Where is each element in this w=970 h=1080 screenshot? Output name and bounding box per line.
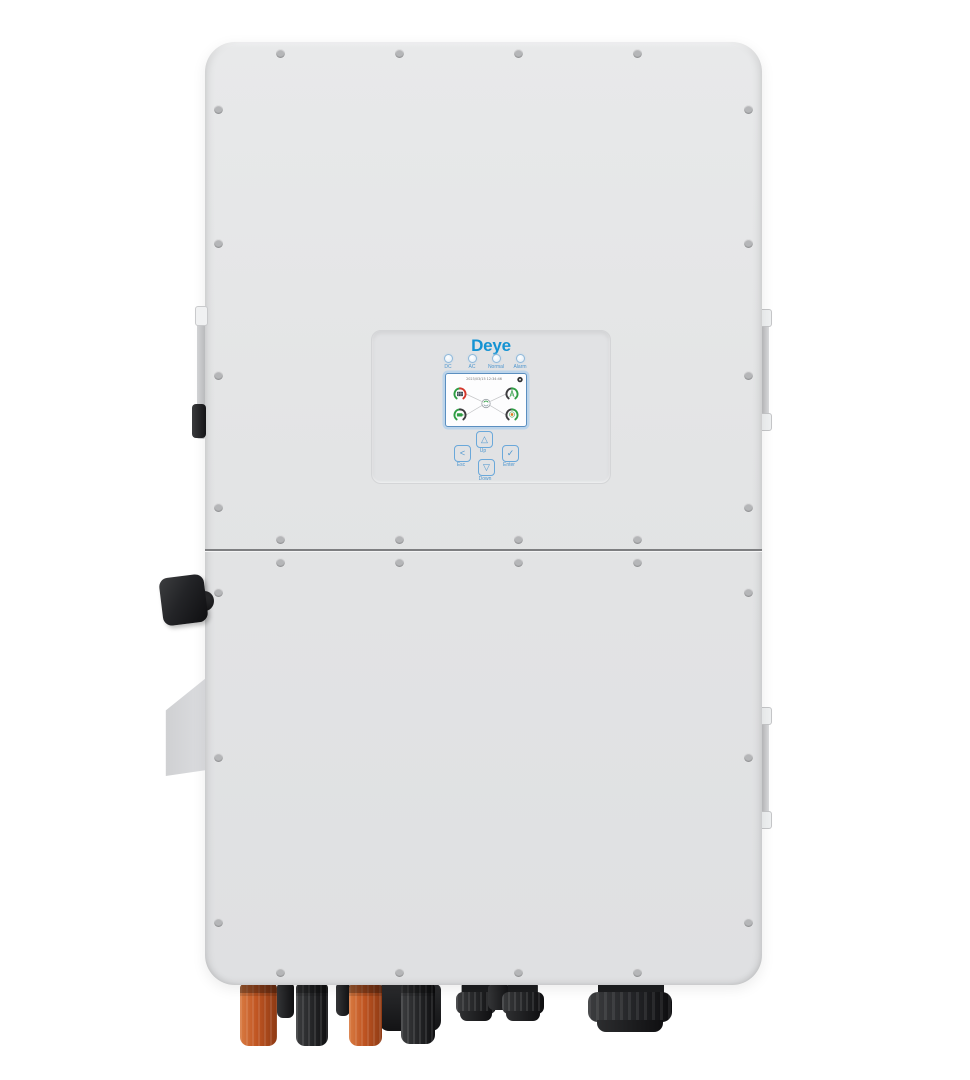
up-button[interactable]: △ <box>476 431 493 448</box>
svg-text:2023/03/15 12:34:46: 2023/03/15 12:34:46 <box>466 377 502 381</box>
screw <box>744 588 753 597</box>
lcd-status-graphic: 2023/03/15 12:34:46 <box>446 374 526 426</box>
enter-button[interactable]: ✓ <box>502 445 519 462</box>
esc-button-label: Esc <box>446 462 476 468</box>
normal-led-icon <box>492 354 501 363</box>
left-rail-cap <box>195 306 208 326</box>
grid-gauge <box>506 388 517 398</box>
left-rail-grip <box>192 404 206 438</box>
led-dc: DC <box>435 354 461 370</box>
load-gauge <box>506 409 517 419</box>
screw <box>395 558 404 567</box>
settings-gear-icon <box>517 377 522 382</box>
led-normal: Normal <box>483 354 509 370</box>
alarm-led-icon <box>516 354 525 363</box>
pv-connector-orange-2 <box>349 984 382 1046</box>
dc-switch-knob[interactable] <box>158 573 209 626</box>
screw <box>214 918 223 927</box>
esc-button[interactable]: < <box>454 445 471 462</box>
screw <box>276 558 285 567</box>
screw <box>514 49 523 58</box>
pv-connector-black-1 <box>296 984 328 1046</box>
pv-connector-orange-1 <box>240 984 277 1046</box>
enclosure-seam <box>205 549 762 551</box>
wall-mount-bracket <box>165 678 206 776</box>
screw <box>395 49 404 58</box>
screw <box>633 968 642 977</box>
screw <box>514 558 523 567</box>
screw <box>276 968 285 977</box>
led-alarm: Alarm <box>507 354 533 370</box>
inverter-enclosure <box>205 42 762 985</box>
product-photo-deye-hybrid-inverter: Deye DC AC Normal Alarm 2023/03/15 12:3 <box>0 0 970 1080</box>
screw <box>633 535 642 544</box>
lcd-screen: 2023/03/15 12:34:46 <box>445 373 527 427</box>
screw <box>214 371 223 380</box>
down-button[interactable]: ▽ <box>478 459 495 476</box>
right-handle-rail-upper <box>761 314 769 426</box>
screw <box>214 105 223 114</box>
screw <box>395 968 404 977</box>
pv-connector-stub-1 <box>277 984 294 1018</box>
screw <box>744 918 753 927</box>
cable-gland-large <box>588 982 672 1034</box>
screw <box>214 588 223 597</box>
screw <box>514 535 523 544</box>
led-ac: AC <box>459 354 485 370</box>
pv-gauge <box>454 388 465 398</box>
screw <box>744 371 753 380</box>
battery-gauge <box>454 409 465 419</box>
screw <box>744 239 753 248</box>
right-handle-rail-lower <box>761 712 769 824</box>
screw <box>744 753 753 762</box>
cable-gland-small-2 <box>502 984 544 1024</box>
screw <box>214 239 223 248</box>
up-button-label: Up <box>468 448 498 454</box>
screw <box>744 503 753 512</box>
screw <box>633 558 642 567</box>
inverter-node-icon <box>482 399 490 407</box>
screw <box>744 105 753 114</box>
pv-connector-stub-2 <box>336 984 350 1016</box>
ac-led-icon <box>468 354 477 363</box>
screw <box>276 535 285 544</box>
pv-connector-black-2 <box>401 984 435 1044</box>
down-button-label: Down <box>470 476 500 482</box>
screw <box>214 753 223 762</box>
screw <box>214 503 223 512</box>
dc-led-icon <box>444 354 453 363</box>
screw <box>276 49 285 58</box>
screw <box>514 968 523 977</box>
brand-logo: Deye <box>372 336 610 356</box>
enter-button-label: Enter <box>494 462 524 468</box>
screw <box>395 535 404 544</box>
display-panel: Deye DC AC Normal Alarm 2023/03/15 12:3 <box>371 330 611 484</box>
screw <box>633 49 642 58</box>
